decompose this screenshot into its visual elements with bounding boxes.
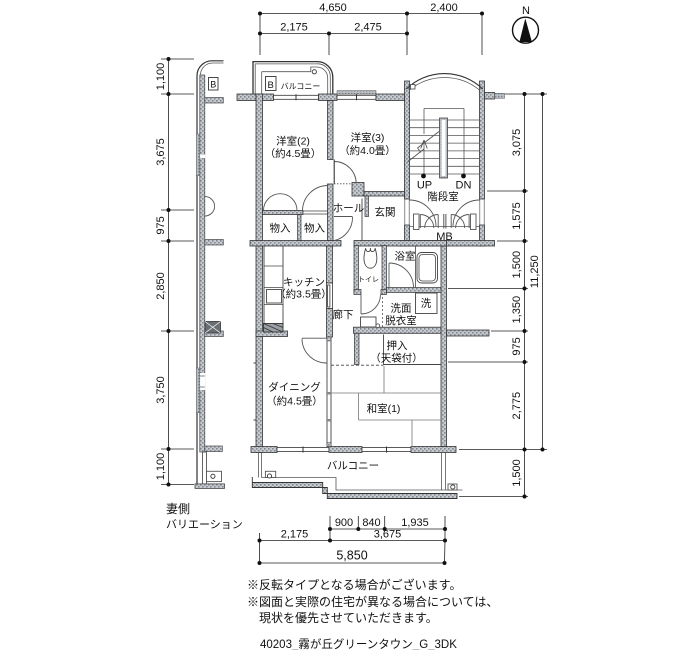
svg-text:キッチン: キッチン bbox=[283, 277, 325, 289]
svg-text:廊下: 廊下 bbox=[333, 308, 354, 321]
svg-text:物入: 物入 bbox=[304, 222, 325, 235]
svg-text:DN: DN bbox=[456, 180, 472, 192]
svg-text:4,650: 4,650 bbox=[319, 2, 347, 14]
svg-text:1,100: 1,100 bbox=[155, 63, 167, 91]
svg-text:5,850: 5,850 bbox=[336, 549, 367, 563]
svg-text:和室(1): 和室(1) bbox=[367, 402, 401, 415]
svg-text:バルコニー: バルコニー bbox=[281, 82, 321, 91]
svg-text:1,100: 1,100 bbox=[155, 453, 167, 481]
svg-text:3,675: 3,675 bbox=[374, 529, 402, 541]
svg-text:40203_霧が丘グリーンタウン_G_3DK: 40203_霧が丘グリーンタウン_G_3DK bbox=[260, 637, 457, 650]
svg-text:975: 975 bbox=[155, 216, 167, 234]
svg-text:バルコニー: バルコニー bbox=[327, 460, 379, 472]
svg-text:1,500: 1,500 bbox=[511, 459, 523, 487]
svg-text:※図面と実際の住宅が異なる場合については、: ※図面と実際の住宅が異なる場合については、 bbox=[247, 594, 498, 609]
svg-text:現状を優先させていただきます。: 現状を優先させていただきます。 bbox=[259, 611, 438, 625]
svg-text:UP: UP bbox=[417, 180, 432, 192]
svg-text:B: B bbox=[268, 80, 274, 91]
svg-text:2,175: 2,175 bbox=[280, 22, 308, 34]
svg-text:（約4.5畳）: （約4.5畳） bbox=[266, 395, 323, 408]
svg-text:押入: 押入 bbox=[387, 339, 408, 352]
svg-text:ホール: ホール bbox=[333, 203, 365, 215]
svg-text:バリエーション: バリエーション bbox=[166, 518, 243, 531]
svg-text:洗面: 洗面 bbox=[391, 303, 412, 315]
svg-text:浴室: 浴室 bbox=[395, 250, 416, 263]
svg-text:11,250: 11,250 bbox=[529, 255, 541, 288]
svg-text:MB: MB bbox=[436, 231, 453, 243]
svg-text:玄関: 玄関 bbox=[375, 206, 396, 219]
svg-text:1,500: 1,500 bbox=[511, 251, 523, 279]
svg-text:2,475: 2,475 bbox=[354, 22, 382, 34]
svg-text:洋室(3): 洋室(3) bbox=[351, 131, 385, 144]
svg-text:（約4.5畳）: （約4.5畳） bbox=[265, 147, 322, 160]
svg-text:2,775: 2,775 bbox=[511, 392, 523, 420]
svg-text:1,350: 1,350 bbox=[511, 296, 523, 324]
svg-text:ダイニング: ダイニング bbox=[268, 381, 321, 394]
svg-text:B: B bbox=[210, 80, 216, 90]
svg-text:階段室: 階段室 bbox=[427, 190, 459, 203]
svg-text:3,075: 3,075 bbox=[511, 129, 523, 157]
svg-text:物入: 物入 bbox=[270, 222, 291, 235]
svg-text:N: N bbox=[522, 5, 530, 17]
svg-text:脱衣室: 脱衣室 bbox=[385, 314, 417, 327]
svg-text:トイレ: トイレ bbox=[358, 277, 379, 284]
svg-text:1,935: 1,935 bbox=[401, 517, 429, 529]
svg-text:洗: 洗 bbox=[421, 298, 432, 310]
svg-text:※反転タイプとなる場合がございます。: ※反転タイプとなる場合がございます。 bbox=[247, 577, 461, 592]
svg-text:（約4.0畳）: （約4.0畳） bbox=[339, 144, 396, 157]
svg-text:1,575: 1,575 bbox=[511, 202, 523, 230]
svg-text:妻側: 妻側 bbox=[166, 502, 190, 516]
svg-text:2,175: 2,175 bbox=[281, 529, 309, 541]
svg-text:840: 840 bbox=[362, 517, 380, 529]
svg-text:2,400: 2,400 bbox=[430, 2, 458, 14]
svg-text:3,750: 3,750 bbox=[155, 376, 167, 404]
svg-text:2,850: 2,850 bbox=[155, 272, 167, 300]
svg-text:（天袋付）: （天袋付） bbox=[370, 352, 423, 365]
svg-text:900: 900 bbox=[335, 517, 353, 529]
svg-text:洋室(2): 洋室(2) bbox=[276, 135, 310, 148]
svg-text:975: 975 bbox=[511, 337, 523, 355]
svg-text:3,675: 3,675 bbox=[155, 138, 167, 166]
svg-text:（約3.5畳）: （約3.5畳） bbox=[275, 288, 332, 301]
